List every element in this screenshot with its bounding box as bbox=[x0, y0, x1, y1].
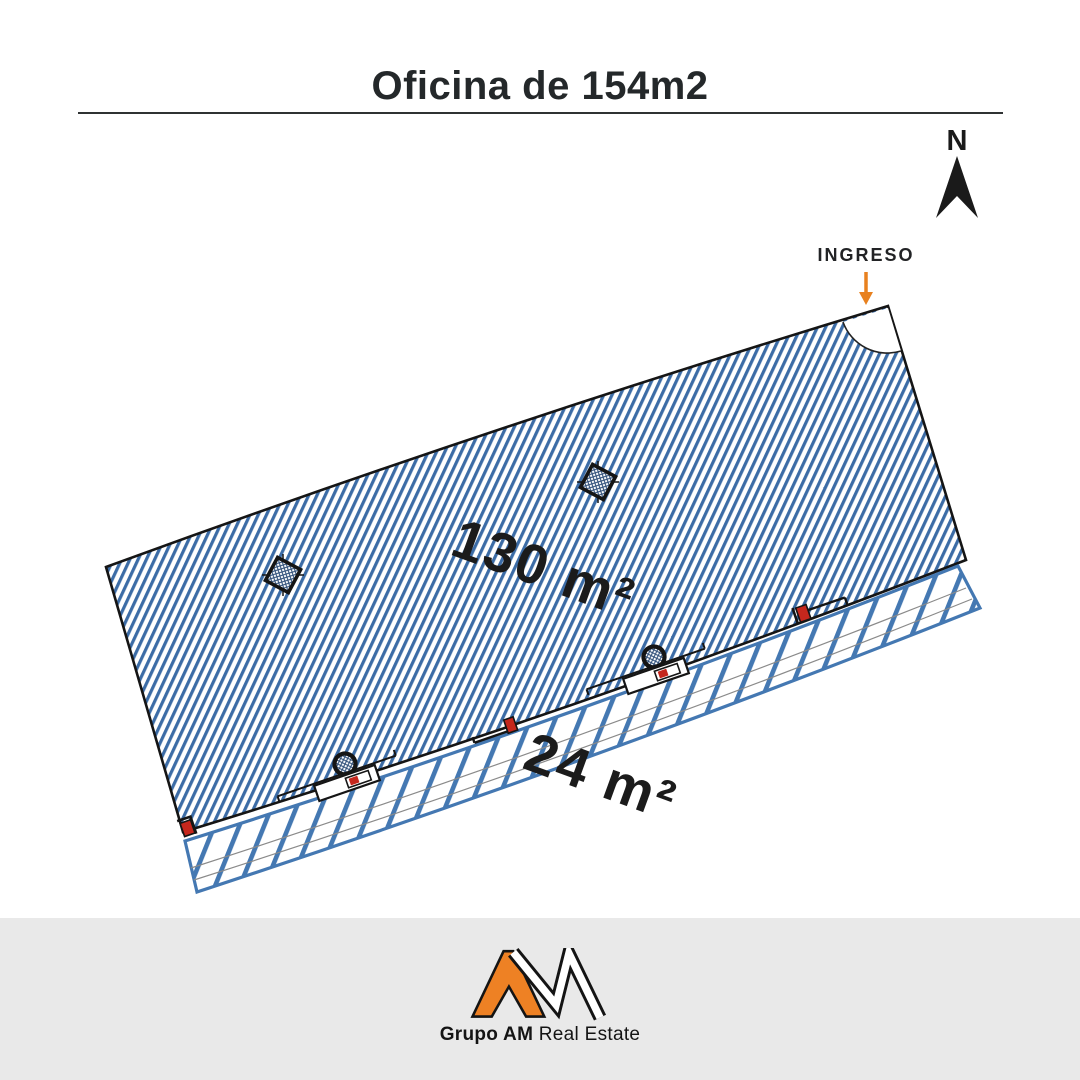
entrance-arrowhead-icon bbox=[859, 292, 873, 305]
brand-name-regular: Real Estate bbox=[533, 1024, 640, 1045]
footer: Grupo AM Real Estate bbox=[0, 918, 1080, 1080]
north-arrow-icon bbox=[936, 156, 978, 218]
am-monogram-icon bbox=[465, 948, 615, 1023]
compass-label: N bbox=[947, 125, 968, 157]
flyer: Oficina de 154m2 bbox=[0, 0, 1080, 1080]
brand-name: Grupo AM Real Estate bbox=[0, 1024, 1080, 1046]
entrance-label: INGRESO bbox=[817, 245, 914, 265]
brand-name-bold: Grupo AM bbox=[440, 1024, 534, 1045]
